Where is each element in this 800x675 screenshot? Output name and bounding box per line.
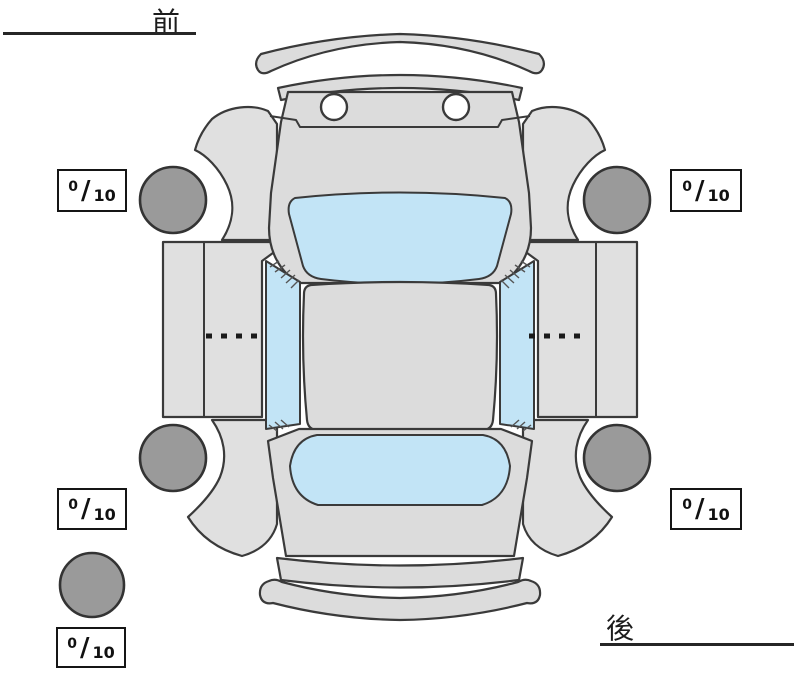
tread-score-rear-right: 0 / 10 xyxy=(670,488,742,530)
tread-max: 10 xyxy=(707,186,729,205)
tread-max: 10 xyxy=(92,643,114,662)
rear-window xyxy=(290,435,510,505)
tread-max: 10 xyxy=(93,505,115,524)
tread-score-front-right: 0 / 10 xyxy=(670,169,742,212)
door-left xyxy=(163,242,277,417)
roof xyxy=(303,282,497,434)
front-bumper xyxy=(256,34,544,73)
tread-separator: / xyxy=(695,178,705,204)
tread-value: 0 xyxy=(682,497,692,513)
tread-value: 0 xyxy=(67,636,77,652)
tire-rear-left xyxy=(140,425,206,491)
tread-score-spare: 0 / 10 xyxy=(56,627,126,668)
tire-rear-right xyxy=(584,425,650,491)
door-right xyxy=(523,242,637,417)
tire-front-right xyxy=(584,167,650,233)
tread-separator: / xyxy=(81,178,91,204)
tread-separator: / xyxy=(695,496,705,522)
rear-label: 後 xyxy=(606,607,634,647)
windshield xyxy=(289,193,512,285)
headlight-right-icon xyxy=(443,94,469,120)
tread-separator: / xyxy=(80,635,90,661)
tread-separator: / xyxy=(81,496,91,522)
side-window-left xyxy=(266,261,300,429)
rear-underline xyxy=(600,643,794,646)
car-top-view xyxy=(0,0,800,675)
trunk-band xyxy=(277,558,523,588)
tread-value: 0 xyxy=(682,179,692,195)
tread-max: 10 xyxy=(93,186,115,205)
tread-score-front-left: 0 / 10 xyxy=(57,169,127,212)
tread-max: 10 xyxy=(707,505,729,524)
tread-value: 0 xyxy=(68,497,78,513)
tread-value: 0 xyxy=(68,179,78,195)
vehicle-inspection-diagram: 前 xyxy=(0,0,800,675)
side-window-right xyxy=(500,261,534,429)
tread-score-rear-left: 0 / 10 xyxy=(57,488,127,530)
spare-tire xyxy=(60,553,124,617)
headlight-left-icon xyxy=(321,94,347,120)
tire-front-left xyxy=(140,167,206,233)
fender-front-left xyxy=(195,107,277,240)
